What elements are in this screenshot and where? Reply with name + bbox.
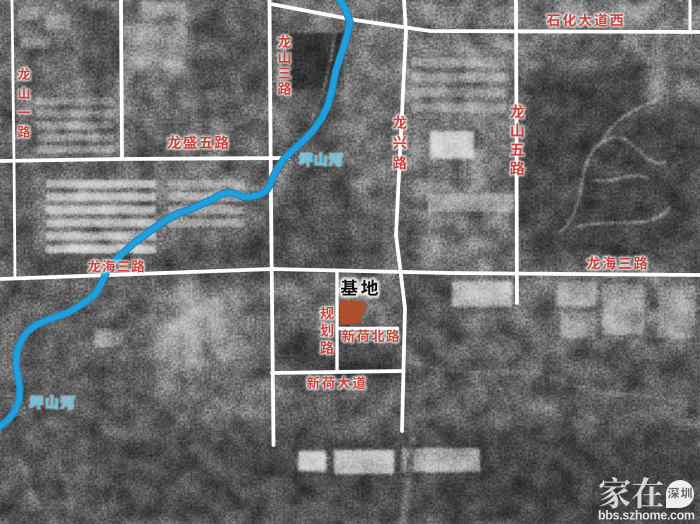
svg-text:bbs.szhome.com: bbs.szhome.com [598,509,695,523]
